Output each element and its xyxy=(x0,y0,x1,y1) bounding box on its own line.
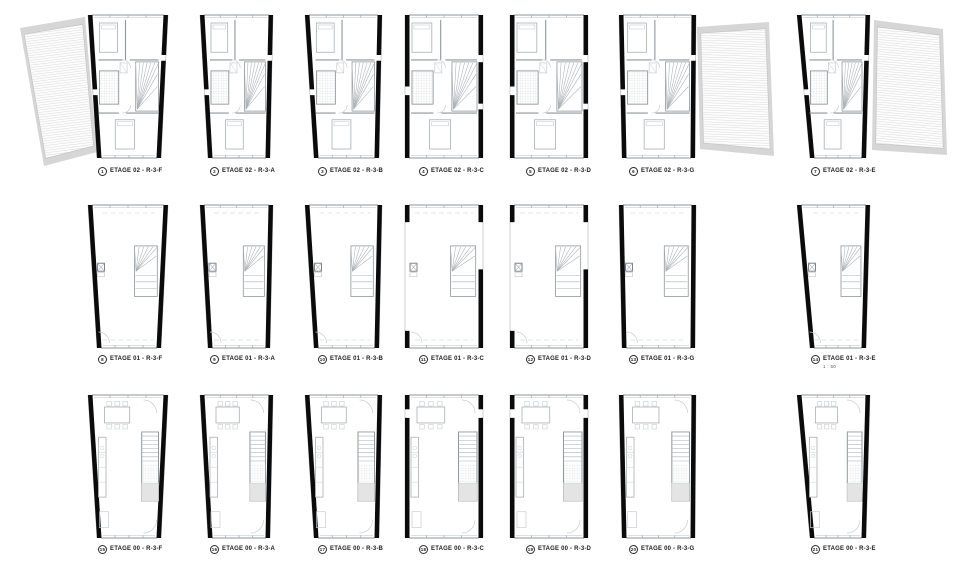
plan-number-badge: 18 xyxy=(419,545,428,554)
plan-number-badge: 2 xyxy=(210,167,219,176)
plan-label: 2ETAGE 02 - R-3-A xyxy=(210,167,275,176)
plan-name-text: ETAGE 00 - R-3-F xyxy=(110,546,162,552)
plan-label: 8ETAGE 01 - R-3-F xyxy=(98,355,162,364)
plan-name-text: ETAGE 02 - R-3-E xyxy=(823,168,876,174)
plan-name-text: ETAGE 02 - R-3-F xyxy=(110,168,162,174)
plan-number-badge: 5 xyxy=(526,167,535,176)
plan-number-badge: 8 xyxy=(98,355,107,364)
plan-label: 15ETAGE 00 - R-3-F xyxy=(98,545,162,554)
plan-label: 9ETAGE 01 - R-3-A xyxy=(210,355,275,364)
plan-number-badge: 15 xyxy=(98,545,107,554)
plan-label: 17ETAGE 00 - R-3-B xyxy=(318,545,383,554)
plan-label: 20ETAGE 00 - R-3-G xyxy=(629,545,694,554)
floor-plan-sheet: 1ETAGE 02 - R-3-F2ETAGE 02 - R-3-A3ETAGE… xyxy=(0,0,960,581)
plan-label: 14ETAGE 01 - R-3-E xyxy=(811,355,876,364)
plan-name-text: ETAGE 02 - R-3-D xyxy=(538,168,591,174)
plan-label: 18ETAGE 00 - R-3-C xyxy=(419,545,484,554)
plan-label: 6ETAGE 02 - R-3-G xyxy=(629,167,694,176)
plan-label: 1ETAGE 02 - R-3-F xyxy=(98,167,162,176)
plan-name-text: ETAGE 01 - R-3-A xyxy=(222,356,275,362)
plan-number-badge: 20 xyxy=(629,545,638,554)
plan-number-badge: 1 xyxy=(98,167,107,176)
plan-name-text: ETAGE 01 - R-3-C xyxy=(431,356,484,362)
plan-label: 3ETAGE 02 - R-3-B xyxy=(318,167,383,176)
plan-number-badge: 7 xyxy=(811,167,820,176)
plan-name-text: ETAGE 01 - R-3-B xyxy=(330,356,383,362)
plan-number-badge: 11 xyxy=(419,355,428,364)
plan-name-text: ETAGE 01 - R-3-F xyxy=(110,356,162,362)
plan-number-badge: 12 xyxy=(526,355,535,364)
plan-number-badge: 17 xyxy=(318,545,327,554)
plan-number-badge: 19 xyxy=(526,545,535,554)
plan-name-text: ETAGE 01 - R-3-E xyxy=(823,356,876,362)
plan-label: 12ETAGE 01 - R-3-D xyxy=(526,355,591,364)
plan-label: 21ETAGE 00 - R-3-E xyxy=(811,545,876,554)
plan-number-badge: 10 xyxy=(318,355,327,364)
plan-number-badge: 9 xyxy=(210,355,219,364)
plan-number-badge: 3 xyxy=(318,167,327,176)
plan-number-badge: 4 xyxy=(419,167,428,176)
plan-label: 13ETAGE 01 - R-3-G xyxy=(629,355,694,364)
plan-label: 19ETAGE 00 - R-3-D xyxy=(526,545,591,554)
plan-name-text: ETAGE 00 - R-3-G xyxy=(641,546,694,552)
plan-name-text: ETAGE 01 - R-3-G xyxy=(641,356,694,362)
plan-name-text: ETAGE 02 - R-3-G xyxy=(641,168,694,174)
plan-name-text: ETAGE 00 - R-3-E xyxy=(823,546,876,552)
plan-name-text: ETAGE 02 - R-3-C xyxy=(431,168,484,174)
plan-name-text: ETAGE 00 - R-3-D xyxy=(538,546,591,552)
plan-label: 7ETAGE 02 - R-3-E xyxy=(811,167,876,176)
plan-labels-layer: 1ETAGE 02 - R-3-F2ETAGE 02 - R-3-A3ETAGE… xyxy=(0,0,960,581)
plan-number-badge: 21 xyxy=(811,545,820,554)
plan-name-text: ETAGE 00 - R-3-C xyxy=(431,546,484,552)
plan-label: 10ETAGE 01 - R-3-B xyxy=(318,355,383,364)
scale-note: 1 : 50 xyxy=(823,364,836,369)
plan-name-text: ETAGE 00 - R-3-A xyxy=(222,546,275,552)
plan-name-text: ETAGE 01 - R-3-D xyxy=(538,356,591,362)
plan-label: 4ETAGE 02 - R-3-C xyxy=(419,167,484,176)
plan-number-badge: 13 xyxy=(629,355,638,364)
plan-number-badge: 14 xyxy=(811,355,820,364)
plan-label: 11ETAGE 01 - R-3-C xyxy=(419,355,484,364)
plan-name-text: ETAGE 02 - R-3-B xyxy=(330,168,383,174)
plan-number-badge: 6 xyxy=(629,167,638,176)
plan-label: 5ETAGE 02 - R-3-D xyxy=(526,167,591,176)
plan-number-badge: 16 xyxy=(210,545,219,554)
plan-label: 16ETAGE 00 - R-3-A xyxy=(210,545,275,554)
plan-name-text: ETAGE 02 - R-3-A xyxy=(222,168,275,174)
plan-name-text: ETAGE 00 - R-3-B xyxy=(330,546,383,552)
